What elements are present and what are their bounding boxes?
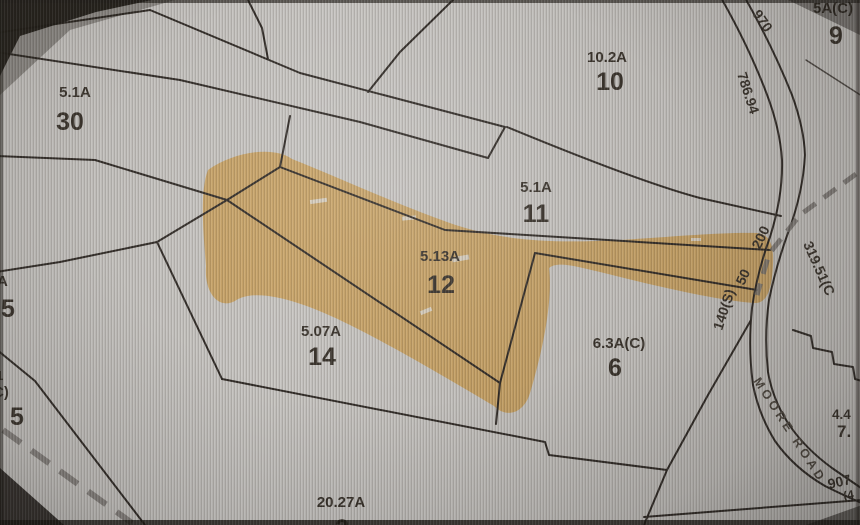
- parcel-6-label[interactable]: 6.3A(C) 6: [593, 335, 646, 382]
- parcel-5-lines: [0, 200, 227, 379]
- parcel-6-right-edge: [644, 320, 751, 525]
- parcel-14-number: 14: [308, 343, 336, 371]
- parcel-5-lower-number: 5: [10, 403, 24, 431]
- parcel-11-number: 11: [523, 200, 550, 228]
- parcel-30-bottom: [0, 156, 227, 200]
- parcel-5-lower-label[interactable]: 1 C) 5: [0, 368, 24, 431]
- parcel-14-acreage: 5.07A: [301, 323, 341, 340]
- parcel-7-number-partial: 7.: [837, 422, 851, 441]
- parcel-11-acreage: 5.1A: [520, 179, 552, 196]
- parcel-10-acreage: 10.2A: [587, 49, 627, 66]
- parcel-7-right-label[interactable]: 4.4 7.: [832, 407, 851, 441]
- parcel-10-left-edge: [368, 0, 457, 92]
- parcel-12-highlight[interactable]: [203, 152, 773, 413]
- dimension-4-partial: (4: [842, 487, 855, 503]
- strip-end-cut: [488, 127, 505, 158]
- parcel-11-label[interactable]: 5.1A 11: [520, 179, 552, 228]
- parcel-map-svg: 5.1A 30 10.2A 10 5A(C) 9 5.1A 11 5.13A 1…: [0, 0, 860, 525]
- parcel-12-number: 12: [427, 271, 455, 299]
- parcel-5-upper-number: 5: [1, 295, 15, 323]
- parcel-map-canvas[interactable]: 5.1A 30 10.2A 10 5A(C) 9 5.1A 11 5.13A 1…: [0, 0, 860, 525]
- stairstep-boundary: [793, 330, 860, 381]
- parcel-2-top: [222, 379, 667, 470]
- parcel-10-number: 10: [596, 68, 624, 96]
- parcel-30-acreage: 5.1A: [59, 84, 91, 101]
- parcel-9-7-boundary: [806, 60, 860, 96]
- dimension-319-51: 319.51(C: [800, 239, 838, 298]
- road-name-label: MOORE ROAD: [750, 375, 828, 485]
- parcel-14-label[interactable]: 5.07A 14: [301, 323, 341, 371]
- parcel-2-acreage: 20.27A: [317, 494, 366, 511]
- bottom-right-line: [644, 500, 860, 517]
- dimension-970: 970: [750, 7, 777, 35]
- parcel-10-label[interactable]: 10.2A 10: [587, 49, 627, 96]
- parcel-6-number: 6: [608, 354, 622, 382]
- parcel-6-acreage: 6.3A(C): [593, 335, 646, 352]
- parcel-7-acreage-partial: 4.4: [832, 407, 851, 422]
- dimension-786-94: 786.94: [734, 70, 763, 116]
- parcel-30-number: 30: [56, 108, 84, 136]
- strip-bottom-edge: [0, 52, 488, 158]
- spur-line: [246, 0, 268, 59]
- parcel-30-label[interactable]: 5.1A 30: [56, 84, 91, 136]
- parcel-9-number: 9: [829, 22, 843, 50]
- parcel-12-acreage: 5.13A: [420, 248, 460, 265]
